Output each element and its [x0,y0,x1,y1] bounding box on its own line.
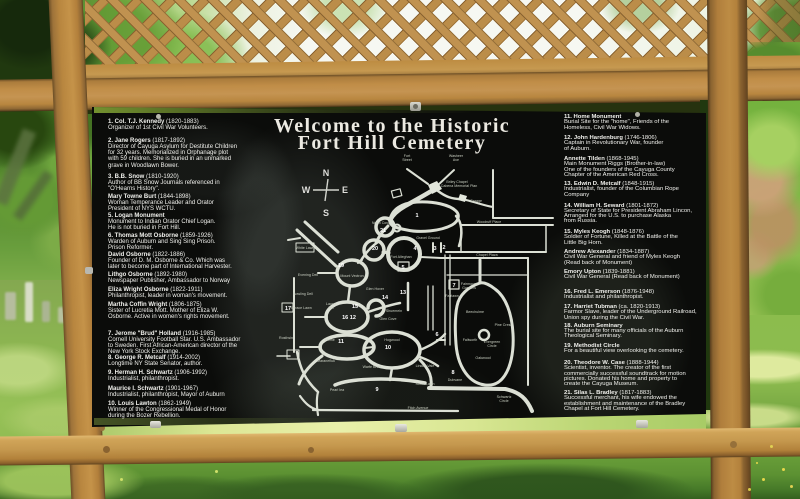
svg-text:16 12: 16 12 [342,315,356,321]
svg-text:14: 14 [382,295,389,301]
svg-text:1: 1 [415,213,418,219]
svg-text:Street: Street [402,158,412,162]
svg-text:Circle: Circle [487,344,496,348]
svg-text:Chapel Plaza: Chapel Plaza [476,253,497,257]
svg-text:S: S [323,208,329,218]
svg-text:2: 2 [442,245,445,251]
svg-text:Home: Home [325,338,335,342]
svg-text:6: 6 [435,332,438,338]
svg-text:20: 20 [372,246,378,252]
svg-text:Cabena Memorial Plan: Cabena Memorial Plan [441,184,478,188]
svg-text:Fairlawn: Fairlawn [445,294,459,298]
svg-text:Oakwood: Oakwood [475,356,490,360]
svg-text:Woodruff Place: Woodruff Place [477,220,501,224]
svg-text:Fallworth: Fallworth [463,338,478,342]
svg-text:19: 19 [338,263,344,269]
svg-text:Terrace Lawn: Terrace Lawn [290,306,312,310]
svg-text:South Lawn: South Lawn [416,382,435,386]
svg-text:Pine Crest: Pine Crest [495,323,512,327]
svg-text:Maranefluk: Maranefluk [317,359,335,363]
svg-text:8: 8 [451,370,454,376]
svg-text:Gardens: Gardens [462,286,476,290]
svg-text:White Lawn: White Lawn [296,246,315,250]
svg-text:North Cove: North Cove [372,221,390,225]
svg-text:Garage: Garage [470,199,482,203]
svg-text:Gravel Ground: Gravel Ground [416,236,440,240]
svg-text:Hogwood: Hogwood [384,338,399,342]
svg-text:3: 3 [433,246,436,252]
svg-text:Bowling Dell: Bowling Dell [293,292,313,296]
svg-text:Mount Vectron: Mount Vectron [340,274,363,278]
svg-text:9: 9 [375,387,378,393]
svg-text:Fitch Avenue: Fitch Avenue [408,406,429,410]
svg-text:W: W [302,185,311,195]
svg-text:Fort Alleghan: Fort Alleghan [390,255,411,259]
svg-text:13: 13 [400,290,406,296]
svg-text:Dubvane: Dubvane [448,378,462,382]
svg-text:5: 5 [401,265,404,271]
svg-text:Glen Cove: Glen Cove [380,317,397,321]
svg-text:Pearl lea: Pearl lea [330,388,344,392]
svg-text:10: 10 [385,345,391,351]
svg-text:Hill: Hill [329,306,334,310]
svg-text:Warfe Brine: Warfe Brine [363,365,382,369]
svg-text:Circle: Circle [499,399,508,403]
svg-text:Beechulme: Beechulme [466,310,484,314]
svg-text:15: 15 [352,304,358,310]
svg-text:N: N [323,168,330,178]
svg-text:Linden Vale: Linden Vale [416,364,435,368]
svg-text:E: E [342,185,348,195]
svg-text:Rosthsin: Rosthsin [279,336,293,340]
svg-text:21: 21 [380,228,386,234]
svg-text:Glen Hover: Glen Hover [366,287,385,291]
svg-text:Shuemein: Shuemein [386,309,402,313]
svg-text:7: 7 [452,283,455,289]
svg-text:11: 11 [338,339,344,345]
svg-text:Ave: Ave [453,158,459,162]
svg-text:Evening Dell: Evening Dell [298,273,318,277]
